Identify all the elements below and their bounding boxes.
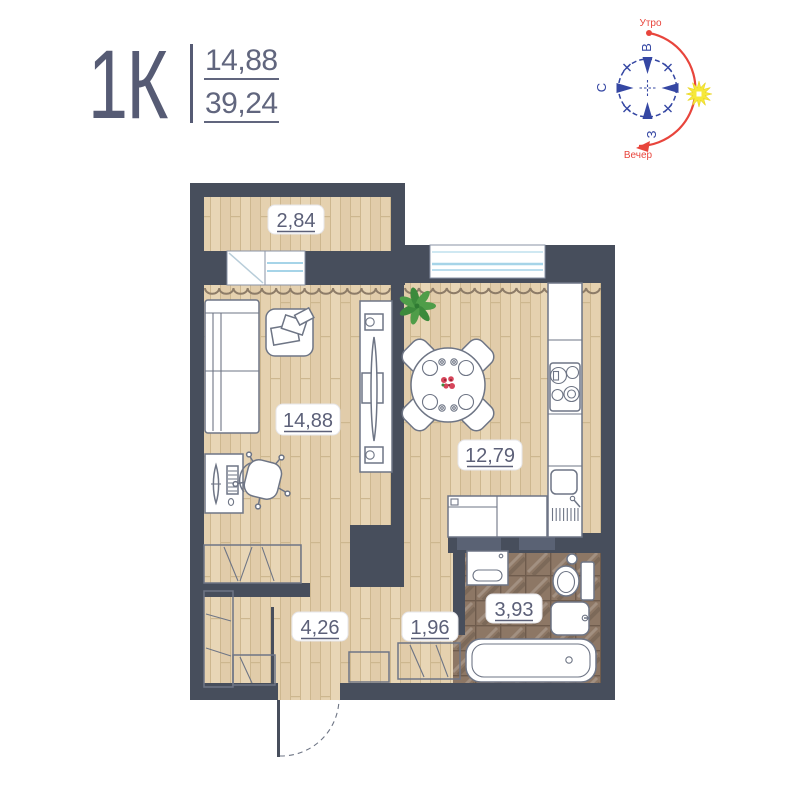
balcony-door-window	[227, 251, 305, 285]
bathroom-label: 3,93	[486, 594, 542, 623]
wall-bottom-right	[340, 683, 615, 700]
wall-living-bottom	[190, 583, 310, 597]
tv-screen	[371, 337, 377, 441]
svg-text:12,79: 12,79	[465, 445, 515, 467]
entrance-threshold-floor	[278, 683, 340, 700]
bathroom-sink	[551, 602, 590, 635]
dining-set	[398, 335, 497, 434]
kitchen-counter	[548, 283, 582, 537]
svg-text:4,26: 4,26	[301, 617, 340, 639]
bed	[205, 300, 259, 433]
kitchen-window	[430, 245, 545, 278]
wall-central-pillar	[350, 525, 404, 587]
kitchen-cabinets	[448, 496, 547, 537]
stove	[550, 363, 580, 411]
entrance-door-arc	[280, 700, 339, 756]
svg-text:14,88: 14,88	[283, 410, 333, 432]
keyboard	[227, 466, 238, 494]
svg-text:1,96: 1,96	[411, 617, 450, 639]
tv-unit	[360, 301, 392, 472]
kitchen-label: 12,79	[458, 440, 522, 470]
living-label: 14,88	[276, 404, 340, 435]
svg-text:2,84: 2,84	[277, 210, 316, 232]
wall-outer-right	[601, 245, 615, 700]
bathroom-wall-light	[567, 554, 577, 564]
floorplan: 2,84 14,88 12,79 4,26 1,96	[0, 0, 800, 800]
svg-text:3,93: 3,93	[495, 599, 534, 621]
hallway-label: 4,26	[292, 612, 348, 641]
corridor-label: 1,96	[402, 612, 458, 641]
vent-shaft-1	[457, 537, 501, 550]
wall-central	[391, 283, 404, 525]
hallway-partition	[271, 607, 274, 684]
floorplan-page: 1К 14,88 39,24 В С З Утро Вечер	[0, 0, 800, 800]
wall-outer-left	[190, 285, 204, 700]
balcony-label: 2,84	[268, 205, 324, 234]
bathtub	[466, 639, 596, 682]
vent-shaft-2	[519, 537, 555, 550]
washing-machine	[467, 551, 508, 585]
entrance-door-leaf	[277, 700, 280, 757]
wall-balcony-top	[190, 183, 405, 197]
coffee-table	[266, 308, 314, 356]
